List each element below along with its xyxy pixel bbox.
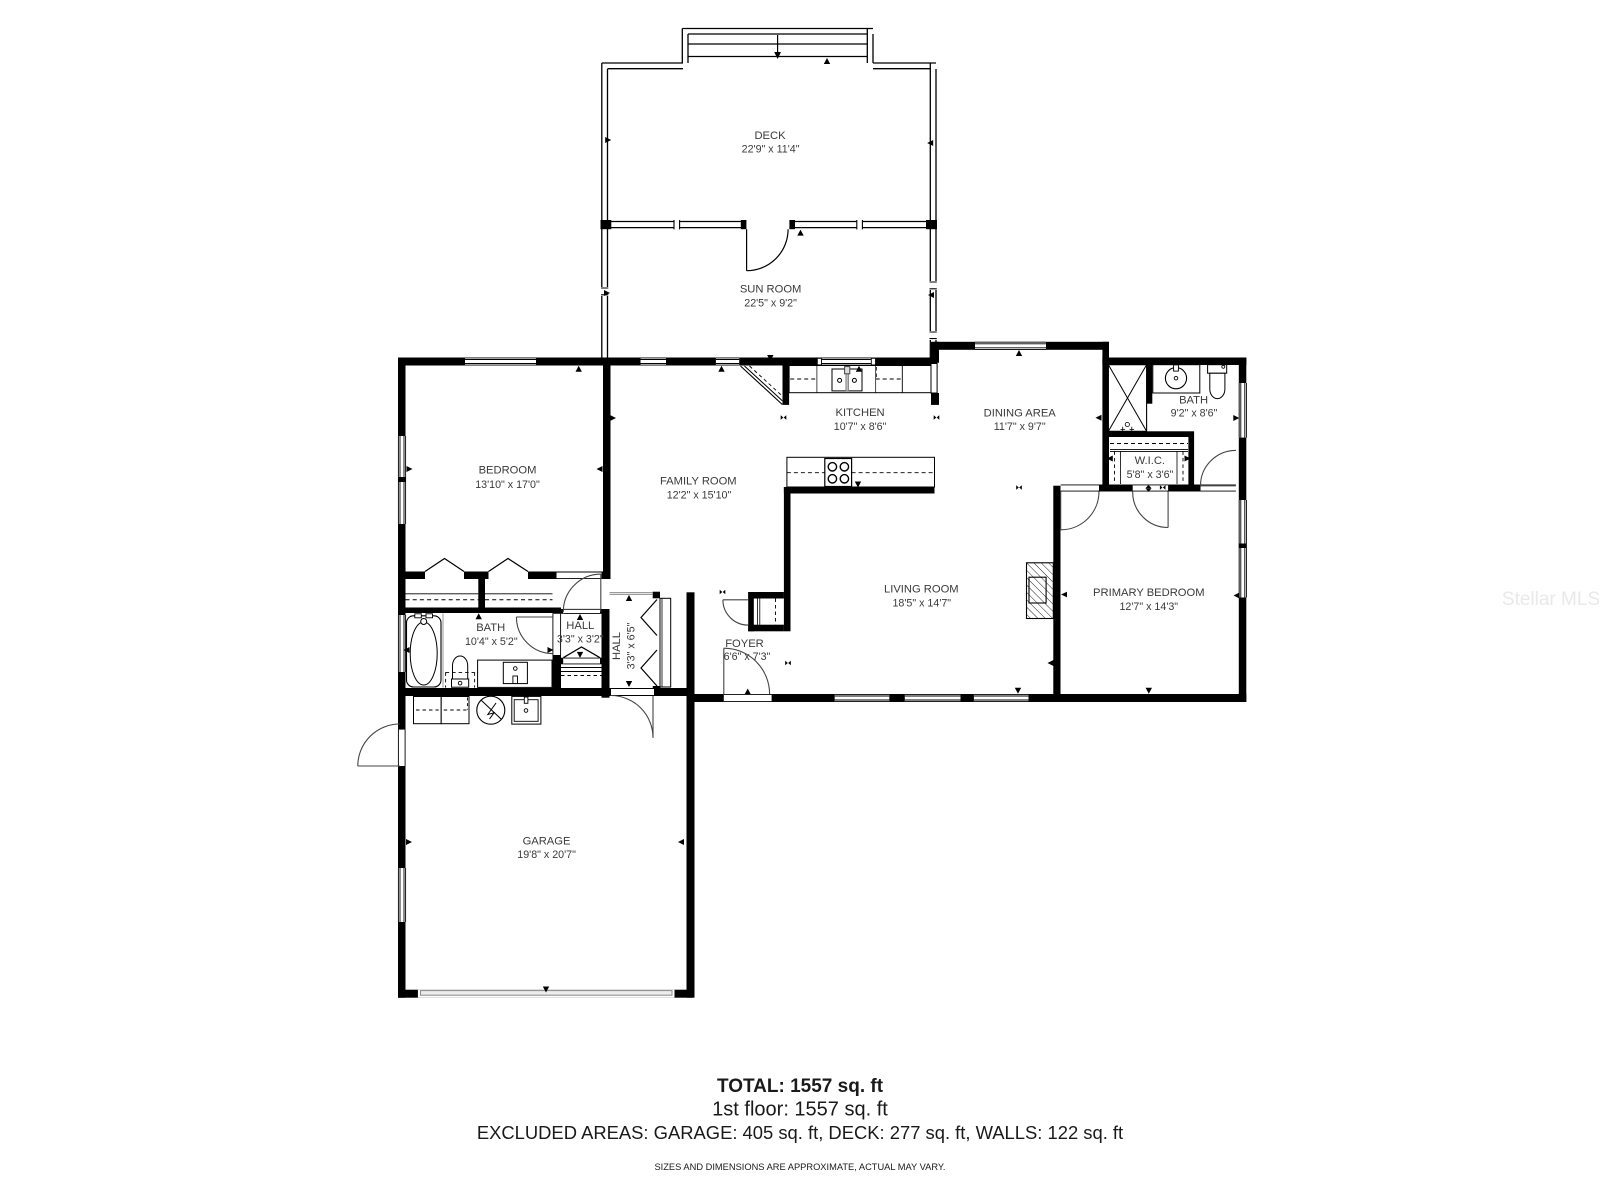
svg-text:DINING AREA: DINING AREA xyxy=(984,408,1057,420)
svg-text:11'7" x 9'7": 11'7" x 9'7" xyxy=(994,421,1046,433)
svg-text:KITCHEN: KITCHEN xyxy=(836,407,885,419)
svg-text:SUN ROOM: SUN ROOM xyxy=(740,284,802,296)
svg-text:12'2" x 15'10": 12'2" x 15'10" xyxy=(667,490,732,502)
svg-text:BATH: BATH xyxy=(476,622,505,634)
svg-text:GARAGE: GARAGE xyxy=(523,836,571,848)
svg-text:EXCLUDED AREAS: GARAGE: 405 sq: EXCLUDED AREAS: GARAGE: 405 sq. ft, DECK… xyxy=(477,1122,1123,1143)
svg-text:10'7" x 8'6": 10'7" x 8'6" xyxy=(834,421,887,433)
svg-text:TOTAL: 1557 sq. ft: TOTAL: 1557 sq. ft xyxy=(717,1076,884,1097)
svg-text:W.I.C.: W.I.C. xyxy=(1135,455,1165,467)
svg-text:9'2" x 8'6": 9'2" x 8'6" xyxy=(1171,407,1218,419)
svg-text:HALL: HALL xyxy=(566,620,594,632)
svg-text:5'8" x 3'6": 5'8" x 3'6" xyxy=(1127,469,1174,481)
svg-text:FAMILY ROOM: FAMILY ROOM xyxy=(660,476,737,488)
svg-text:18'5" x 14'7": 18'5" x 14'7" xyxy=(892,598,951,610)
svg-text:22'9" x 11'4": 22'9" x 11'4" xyxy=(742,144,800,156)
svg-text:12'7" x 14'3": 12'7" x 14'3" xyxy=(1119,601,1178,613)
svg-text:LIVING ROOM: LIVING ROOM xyxy=(884,584,959,596)
svg-text:SIZES AND DIMENSIONS ARE APPRO: SIZES AND DIMENSIONS ARE APPROXIMATE, AC… xyxy=(654,1162,945,1172)
svg-text:3'3" x 6'5": 3'3" x 6'5" xyxy=(626,622,638,669)
svg-text:DECK: DECK xyxy=(754,130,786,142)
svg-text:10'4" x 5'2": 10'4" x 5'2" xyxy=(465,636,518,648)
svg-text:FOYER: FOYER xyxy=(725,638,764,650)
svg-text:Stellar MLS: Stellar MLS xyxy=(1502,589,1600,610)
svg-text:BEDROOM: BEDROOM xyxy=(479,465,537,477)
svg-text:13'10" x 17'0": 13'10" x 17'0" xyxy=(475,479,540,491)
svg-text:19'8" x 20'7": 19'8" x 20'7" xyxy=(517,849,576,861)
svg-text:HALL: HALL xyxy=(611,632,623,660)
svg-text:3'3" x 3'2": 3'3" x 3'2" xyxy=(557,634,604,646)
svg-text:PRIMARY BEDROOM: PRIMARY BEDROOM xyxy=(1093,587,1204,599)
svg-text:BATH: BATH xyxy=(1179,395,1208,407)
svg-text:1st floor: 1557 sq. ft: 1st floor: 1557 sq. ft xyxy=(712,1099,888,1121)
svg-text:6'6" x 7'3": 6'6" x 7'3" xyxy=(724,651,771,663)
svg-text:22'5" x 9'2": 22'5" x 9'2" xyxy=(744,298,797,310)
